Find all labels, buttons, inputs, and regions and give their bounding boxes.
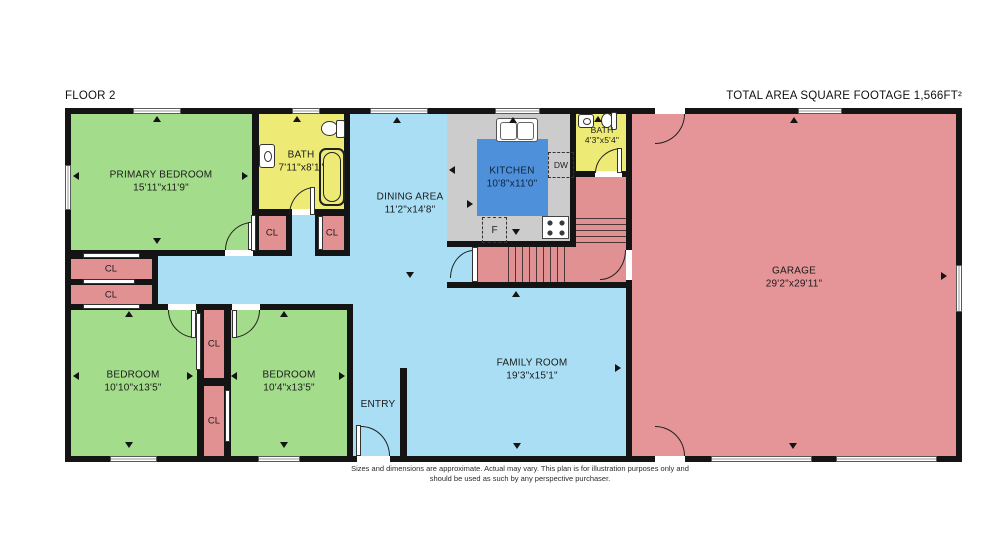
closet-label: CL [105, 290, 117, 301]
closet-label: CL [326, 228, 338, 239]
door-opening-entry [357, 456, 390, 462]
dimension-marker [293, 116, 301, 122]
dimension-marker [594, 116, 602, 122]
refrigerator-label: F [491, 225, 497, 236]
closet-door-leaf [251, 215, 256, 251]
room-dims: 10'4"x13'5" [262, 382, 315, 395]
closet-door-leaf [196, 313, 201, 370]
kitchen-sink-icon [496, 118, 538, 142]
wall-landing-bottom [447, 282, 626, 288]
room-name: BEDROOM [104, 370, 161, 383]
room-name: ENTRY [361, 399, 396, 412]
disclaimer-line-2: should be used as such by any perspectiv… [318, 474, 722, 484]
room-dims: 15'11"x11'9" [110, 182, 213, 195]
closet-door-leaf [83, 279, 135, 284]
floor-label: FLOOR 2 [65, 90, 116, 102]
dimension-marker [449, 166, 455, 174]
room-dims: 11'2"x14'8" [377, 204, 444, 217]
dishwasher-icon: DW [548, 152, 574, 178]
room-label-bedroom-mid: BEDROOM 10'4"x13'5" [262, 370, 315, 395]
wall-entry-stub [400, 368, 407, 462]
room-dims: 10'8"x11'0" [487, 178, 538, 191]
dimension-marker [339, 372, 345, 380]
door-leaf [356, 425, 361, 456]
stairs-upper-run [576, 213, 626, 243]
door-opening [225, 250, 253, 256]
room-dims: 10'10"x13'5" [104, 382, 161, 395]
room-name: FAMILY ROOM [497, 358, 568, 371]
wall-kitchen-bottom [447, 241, 576, 247]
total-area-label: TOTAL AREA SQUARE FOOTAGE 1,566FT² [726, 90, 962, 102]
floor-plan-page: { "header": { "floor_label": "FLOOR 2", … [0, 0, 1000, 548]
closet-door-leaf [83, 253, 140, 258]
dimension-marker [789, 443, 797, 449]
room-label-bedroom-left: BEDROOM 10'10"x13'5" [104, 370, 161, 395]
dimension-marker [512, 291, 520, 297]
room-label-primary-bedroom: PRIMARY BEDROOM 15'11"x11'9" [110, 170, 213, 195]
dimension-marker [615, 364, 621, 372]
dimension-marker [512, 229, 520, 235]
door-opening-garage-side [626, 250, 632, 280]
dimension-marker [187, 372, 193, 380]
room-label-dining-area: DINING AREA 11'2"x14'8" [377, 192, 444, 217]
dimension-marker [790, 117, 798, 123]
dimension-marker [941, 272, 947, 280]
window [956, 265, 962, 312]
dimension-marker [153, 238, 161, 244]
door-leaf [232, 310, 237, 338]
dimension-marker [125, 442, 133, 448]
closet-label: CL [208, 339, 220, 350]
closet-door-leaf [225, 390, 230, 442]
dimension-marker [73, 172, 79, 180]
window [495, 108, 540, 114]
window [292, 108, 320, 114]
refrigerator-icon: F [482, 217, 507, 243]
room-label-entry: ENTRY [361, 399, 396, 412]
garage-door [836, 456, 937, 462]
room-dims: 7'11"x8'1" [279, 162, 324, 175]
garage-door [711, 456, 812, 462]
closet-label: CL [208, 416, 220, 427]
room-name: DINING AREA [377, 192, 444, 205]
window [798, 108, 842, 114]
window [110, 456, 157, 462]
room-name: KITCHEN [487, 166, 538, 179]
dimension-marker [467, 200, 473, 208]
disclaimer-text: Sizes and dimensions are approximate. Ac… [318, 464, 722, 484]
window [65, 165, 71, 210]
door-opening-garage-bottom [655, 456, 685, 462]
sink-icon [259, 144, 275, 168]
closet-label: CL [266, 228, 278, 239]
disclaimer-line-1: Sizes and dimensions are approximate. Ac… [318, 464, 722, 474]
dimension-marker [231, 372, 237, 380]
dimension-marker [393, 117, 401, 123]
toilet-icon [321, 120, 345, 136]
room-label-bath-small: BATH 4'3"x5'4" [585, 125, 619, 145]
room-name: BATH [279, 150, 324, 163]
room-name: BEDROOM [262, 370, 315, 383]
closet-label: CL [105, 264, 117, 275]
floor-plan: DW F PRIMARY BEDROOM 15'11"x11'9" BATH 7… [65, 108, 962, 462]
window [258, 456, 300, 462]
room-name: GARAGE [766, 266, 823, 279]
dimension-marker [280, 311, 288, 317]
room-label-family-room: FAMILY ROOM 19'3"x15'1" [497, 358, 568, 383]
door-leaf [472, 247, 478, 282]
wall-outer-left [65, 108, 71, 462]
room-dims: 19'3"x15'1" [497, 370, 568, 383]
room-name: PRIMARY BEDROOM [110, 170, 213, 183]
door-leaf [310, 187, 315, 215]
dimension-marker [280, 442, 288, 448]
closet-door-leaf [318, 216, 323, 250]
dimension-marker [73, 372, 79, 380]
dimension-marker [242, 172, 248, 180]
room-dims: 29'2"x29'11" [766, 278, 823, 291]
room-label-kitchen: KITCHEN 10'8"x11'0" [487, 166, 538, 191]
dimension-marker [125, 311, 133, 317]
room-dims: 4'3"x5'4" [585, 135, 619, 145]
dimension-marker [513, 443, 521, 449]
dishwasher-label: DW [554, 160, 568, 170]
dimension-marker [406, 272, 414, 278]
room-label-bath-main: BATH 7'11"x8'1" [279, 150, 324, 175]
room-name: BATH [585, 125, 619, 135]
closet-door-leaf [83, 304, 140, 309]
stairs-main-run [508, 247, 570, 282]
room-label-garage: GARAGE 29'2"x29'11" [766, 266, 823, 291]
window [133, 108, 181, 114]
wall-outer-bottom [65, 456, 962, 462]
dimension-marker [153, 116, 161, 122]
door-leaf [617, 148, 622, 173]
dimension-marker [509, 117, 517, 123]
window [370, 108, 428, 114]
stove-icon [542, 216, 569, 239]
